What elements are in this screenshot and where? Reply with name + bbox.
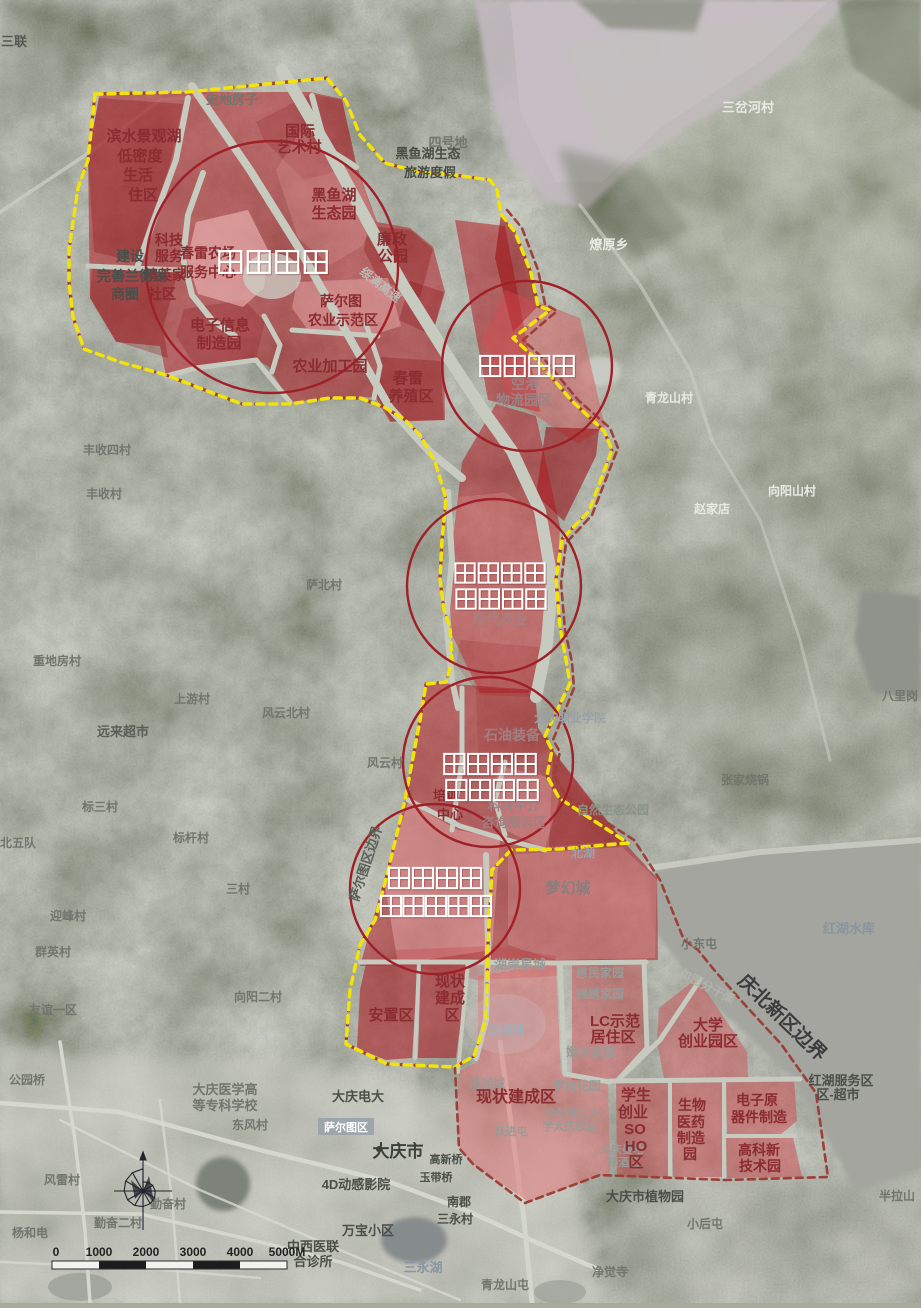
- svg-text:梦幻城: 梦幻城: [545, 879, 590, 897]
- svg-text:2000: 2000: [133, 1245, 160, 1259]
- svg-text:制造园: 制造园: [196, 334, 241, 352]
- svg-text:技术园: 技术园: [739, 1158, 781, 1174]
- svg-text:史地房子: 史地房子: [206, 92, 258, 107]
- svg-text:公园桥: 公园桥: [9, 1072, 46, 1087]
- svg-text:区-超市: 区-超市: [816, 1087, 859, 1102]
- svg-text:现状建成区: 现状建成区: [476, 1087, 556, 1106]
- svg-text:养殖区: 养殖区: [387, 387, 433, 405]
- svg-text:社区: 社区: [147, 286, 176, 302]
- svg-text:农业加工园: 农业加工园: [291, 357, 367, 375]
- svg-text:湖岸星城: 湖岸星城: [494, 957, 546, 972]
- svg-text:东风村: 东风村: [232, 1117, 268, 1132]
- svg-text:惠民家园: 惠民家园: [576, 965, 624, 980]
- svg-text:商圈: 商圈: [111, 286, 139, 302]
- svg-text:创业: 创业: [617, 1103, 648, 1121]
- svg-text:北湖: 北湖: [571, 845, 595, 860]
- svg-text:丰收村: 丰收村: [86, 486, 122, 501]
- svg-text:国际: 国际: [285, 123, 315, 140]
- svg-text:高科新: 高科新: [738, 1142, 780, 1158]
- svg-text:艺术村: 艺术村: [276, 138, 321, 156]
- svg-text:滨水景观湖: 滨水景观湖: [106, 127, 181, 145]
- svg-text:滨洲湖: 滨洲湖: [488, 1022, 524, 1037]
- svg-text:物流园区: 物流园区: [496, 392, 552, 408]
- svg-text:学府花园: 学府花园: [553, 1078, 601, 1093]
- svg-text:4000: 4000: [227, 1245, 254, 1259]
- svg-text:青龙山村: 青龙山村: [645, 390, 693, 405]
- svg-text:跃进屯: 跃进屯: [495, 1124, 528, 1138]
- svg-text:标杆村: 标杆村: [172, 830, 209, 845]
- svg-text:生态园: 生态园: [311, 204, 356, 222]
- svg-text:友谊一区: 友谊一区: [28, 1002, 77, 1017]
- svg-text:勤奋二村: 勤奋二村: [94, 1215, 142, 1230]
- svg-text:农业示范区: 农业示范区: [307, 312, 378, 328]
- svg-text:区: 区: [628, 1154, 643, 1171]
- svg-text:空港: 空港: [511, 376, 540, 392]
- svg-text:廉政: 廉政: [377, 230, 408, 248]
- svg-text:红湖服务区: 红湖服务区: [808, 1073, 873, 1088]
- svg-text:咨询服务区: 咨询服务区: [481, 815, 546, 830]
- svg-text:LC示范: LC示范: [590, 1012, 640, 1030]
- svg-text:完善兰德湖: 完善兰德湖: [97, 268, 167, 284]
- svg-text:公园: 公园: [378, 248, 408, 265]
- svg-text:制造: 制造: [677, 1130, 705, 1146]
- svg-text:三村: 三村: [226, 881, 250, 896]
- svg-text:萨北村: 萨北村: [306, 577, 342, 592]
- svg-text:黑鱼湖: 黑鱼湖: [311, 186, 356, 204]
- svg-text:萨尔图区: 萨尔图区: [324, 1120, 368, 1134]
- svg-text:三永村: 三永村: [437, 1211, 473, 1226]
- svg-text:建成: 建成: [435, 989, 465, 1007]
- svg-text:电子原: 电子原: [736, 1092, 778, 1108]
- svg-text:大庆职业学院: 大庆职业学院: [534, 710, 606, 725]
- svg-text:创业园区: 创业园区: [677, 1032, 738, 1050]
- svg-text:半拉山: 半拉山: [879, 1188, 915, 1203]
- svg-text:安置区: 安置区: [368, 1006, 413, 1024]
- svg-text:哈尔滨工大: 哈尔滨工大: [545, 1106, 600, 1120]
- svg-text:住区: 住区: [128, 186, 158, 204]
- svg-text:居住区: 居住区: [590, 1028, 635, 1046]
- svg-text:小东屯: 小东屯: [681, 936, 717, 951]
- svg-text:向阳二村: 向阳二村: [234, 989, 282, 1004]
- svg-text:风云村: 风云村: [367, 755, 403, 770]
- svg-text:学大庆校区: 学大庆校区: [543, 1119, 598, 1133]
- svg-text:建设: 建设: [116, 248, 145, 264]
- svg-text:八里岗: 八里岗: [881, 688, 918, 703]
- svg-text:大庆电大: 大庆电大: [332, 1089, 384, 1104]
- svg-text:万宝小区: 万宝小区: [341, 1223, 394, 1238]
- svg-text:春雷: 春雷: [393, 369, 423, 387]
- svg-text:三联: 三联: [1, 34, 27, 49]
- svg-text:净觉寺: 净觉寺: [592, 1264, 628, 1279]
- svg-text:玉带桥: 玉带桥: [420, 1170, 454, 1184]
- svg-text:青龙山屯: 青龙山屯: [481, 1277, 529, 1292]
- svg-text:3000: 3000: [180, 1245, 207, 1259]
- svg-text:小后屯: 小后屯: [687, 1216, 723, 1231]
- svg-text:标三村: 标三村: [81, 799, 118, 814]
- svg-text:远来超市: 远来超市: [97, 724, 149, 739]
- svg-text:迎峰村: 迎峰村: [50, 908, 86, 923]
- svg-text:风雷村: 风雷村: [44, 1172, 80, 1187]
- svg-text:丰收四村: 丰收四村: [83, 442, 131, 457]
- svg-text:锦绣家园: 锦绣家园: [576, 986, 624, 1001]
- svg-text:大庆市植物园: 大庆市植物园: [606, 1189, 684, 1204]
- svg-text:学生: 学生: [621, 1086, 651, 1104]
- svg-text:现状: 现状: [435, 972, 466, 990]
- svg-text:HO: HO: [625, 1138, 648, 1155]
- svg-text:向阳山村: 向阳山村: [768, 483, 816, 498]
- svg-text:生活: 生活: [123, 166, 153, 184]
- svg-text:北五队: 北五队: [0, 835, 37, 850]
- svg-text:杨和电: 杨和电: [12, 1225, 48, 1240]
- svg-text:SO: SO: [624, 1121, 646, 1138]
- svg-text:大庆市: 大庆市: [373, 1141, 424, 1161]
- svg-text:器件制造: 器件制造: [730, 1109, 787, 1125]
- svg-text:三永湖: 三永湖: [403, 1260, 442, 1275]
- svg-text:医药: 医药: [677, 1114, 705, 1130]
- svg-text:5000M: 5000M: [269, 1245, 306, 1259]
- svg-text:现代农业: 现代农业: [472, 611, 528, 627]
- svg-text:低密度: 低密度: [116, 147, 163, 165]
- svg-text:黑鱼湖生态: 黑鱼湖生态: [395, 146, 460, 161]
- svg-text:4D动感影院: 4D动感影院: [322, 1177, 391, 1192]
- svg-text:红湖水库: 红湖水库: [823, 921, 875, 936]
- svg-text:张家烧锅: 张家烧锅: [721, 772, 769, 787]
- svg-text:园: 园: [683, 1146, 697, 1162]
- svg-text:燎原乡: 燎原乡: [589, 237, 628, 252]
- svg-text:三岔河村: 三岔河村: [722, 100, 774, 115]
- svg-text:中心: 中心: [437, 807, 463, 822]
- svg-text:1000: 1000: [86, 1245, 113, 1259]
- svg-text:石油装备: 石油装备: [483, 727, 541, 743]
- svg-text:风云北村: 风云北村: [262, 705, 310, 720]
- svg-text:重地房村: 重地房村: [33, 653, 81, 668]
- svg-text:大学: 大学: [693, 1016, 723, 1034]
- svg-text:电子信息: 电子信息: [190, 316, 250, 334]
- svg-text:大庆医学高: 大庆医学高: [192, 1082, 257, 1097]
- svg-text:等专科学校: 等专科学校: [191, 1098, 258, 1113]
- svg-text:生物: 生物: [678, 1097, 706, 1113]
- svg-text:0: 0: [53, 1245, 60, 1259]
- svg-text:萨尔图: 萨尔图: [320, 293, 362, 309]
- svg-text:南郡: 南郡: [447, 1194, 471, 1209]
- svg-text:群英村: 群英村: [34, 944, 71, 959]
- svg-text:自然生态公园: 自然生态公园: [577, 802, 649, 817]
- svg-text:嫩水家园: 嫩水家园: [566, 1044, 614, 1059]
- svg-text:上游村: 上游村: [174, 691, 210, 706]
- svg-text:区: 区: [444, 1007, 459, 1024]
- svg-text:高新桥: 高新桥: [430, 1152, 464, 1166]
- svg-text:勤奋村: 勤奋村: [150, 1196, 186, 1211]
- svg-text:赵家店: 赵家店: [693, 501, 730, 516]
- svg-text:旅游度假: 旅游度假: [404, 165, 457, 180]
